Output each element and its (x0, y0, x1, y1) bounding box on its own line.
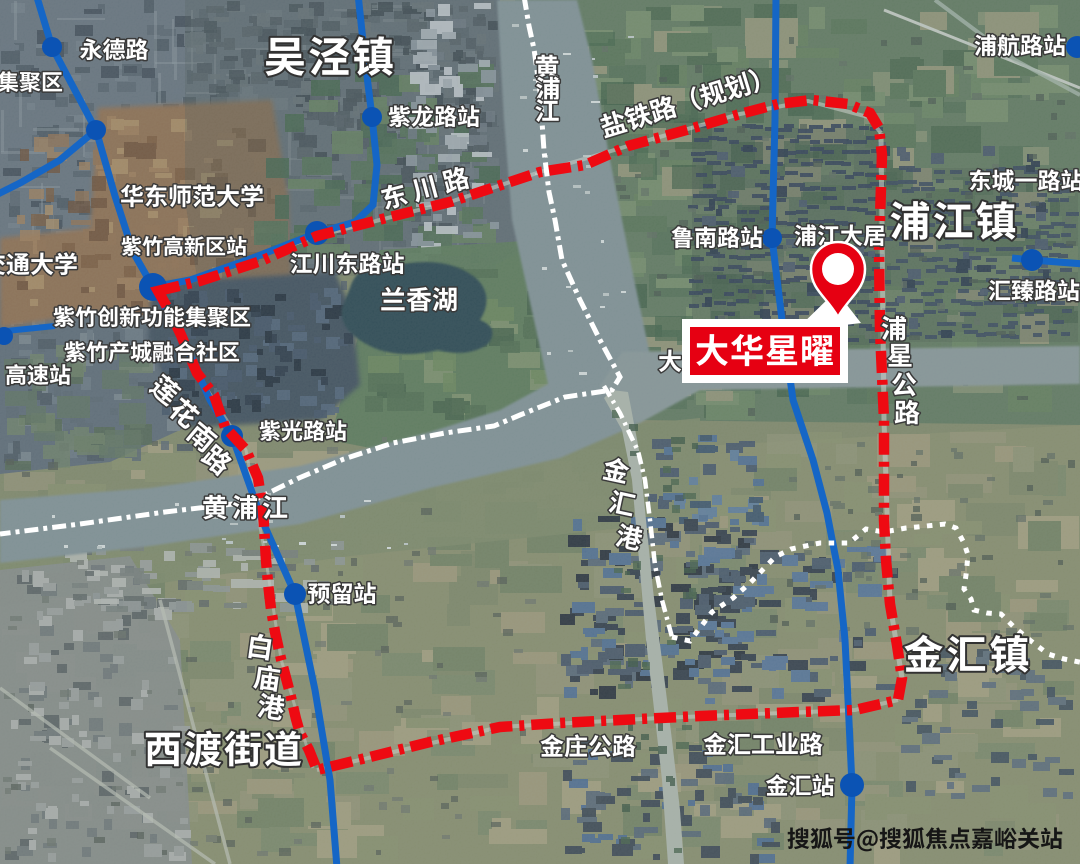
svg-text:吴泾镇: 吴泾镇 (264, 24, 396, 85)
svg-text:汇臻路站: 汇臻路站 (988, 272, 1080, 306)
svg-text:高速站: 高速站 (5, 358, 71, 390)
svg-text:搜狐号@搜狐焦点嘉峪关站: 搜狐号@搜狐焦点嘉峪关站 (787, 820, 1063, 854)
svg-text:黄浦江: 黄浦江 (202, 488, 292, 525)
svg-text:紫竹创新功能集聚区: 紫竹创新功能集聚区 (53, 300, 251, 332)
svg-text:大华星曜: 大华星曜 (695, 324, 835, 373)
svg-text:金汇工业路: 金汇工业路 (703, 725, 823, 760)
svg-text:大: 大 (658, 342, 682, 377)
svg-text:江川东路站: 江川东路站 (290, 245, 405, 279)
svg-text:金汇站: 金汇站 (766, 767, 835, 801)
svg-text:华东师范大学: 华东师范大学 (120, 177, 264, 212)
svg-text:永德路: 永德路 (80, 31, 149, 65)
svg-text:紫竹高新区站: 紫竹高新区站 (121, 231, 247, 261)
svg-text:紫光路站: 紫光路站 (259, 414, 347, 446)
svg-text:鲁南路站: 鲁南路站 (671, 219, 763, 253)
svg-text:紫龙路站: 紫龙路站 (388, 98, 480, 132)
svg-text:路: 路 (894, 393, 920, 430)
svg-text:紫竹产城融合社区: 紫竹产城融合社区 (64, 335, 240, 367)
svg-text:集聚区: 集聚区 (0, 65, 63, 97)
svg-text:金庄公路: 金庄公路 (540, 727, 636, 762)
svg-text:交通大学: 交通大学 (0, 245, 78, 280)
svg-text:金汇镇: 金汇镇 (904, 623, 1033, 681)
svg-text:预留站: 预留站 (308, 575, 377, 609)
svg-text:浦航路站: 浦航路站 (974, 27, 1066, 61)
svg-text:江: 江 (534, 92, 559, 128)
svg-text:浦江镇: 浦江镇 (890, 188, 1019, 248)
svg-text:兰香湖: 兰香湖 (380, 280, 458, 317)
svg-text:西渡街道: 西渡街道 (144, 719, 304, 774)
